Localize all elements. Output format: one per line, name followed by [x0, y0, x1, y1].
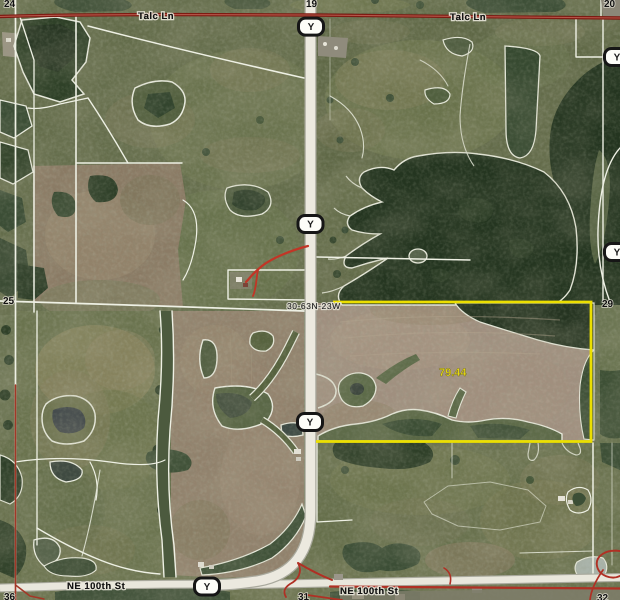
svg-text:20: 20	[604, 0, 616, 10]
svg-text:Talc Ln: Talc Ln	[450, 12, 486, 23]
svg-text:79.44: 79.44	[439, 367, 467, 379]
svg-text:29: 29	[602, 299, 614, 310]
svg-text:36: 36	[4, 592, 16, 600]
svg-text:25: 25	[3, 296, 15, 307]
svg-text:Talc Ln: Talc Ln	[138, 11, 174, 22]
svg-text:NE 100th St: NE 100th St	[340, 586, 399, 597]
svg-text:19: 19	[306, 0, 318, 10]
svg-text:NE 100th St: NE 100th St	[67, 581, 126, 592]
svg-text:32: 32	[597, 593, 609, 600]
svg-text:24: 24	[4, 0, 16, 10]
svg-text:30-63N-23W: 30-63N-23W	[287, 301, 341, 311]
svg-text:Y: Y	[308, 22, 315, 33]
svg-text:31: 31	[298, 592, 310, 600]
